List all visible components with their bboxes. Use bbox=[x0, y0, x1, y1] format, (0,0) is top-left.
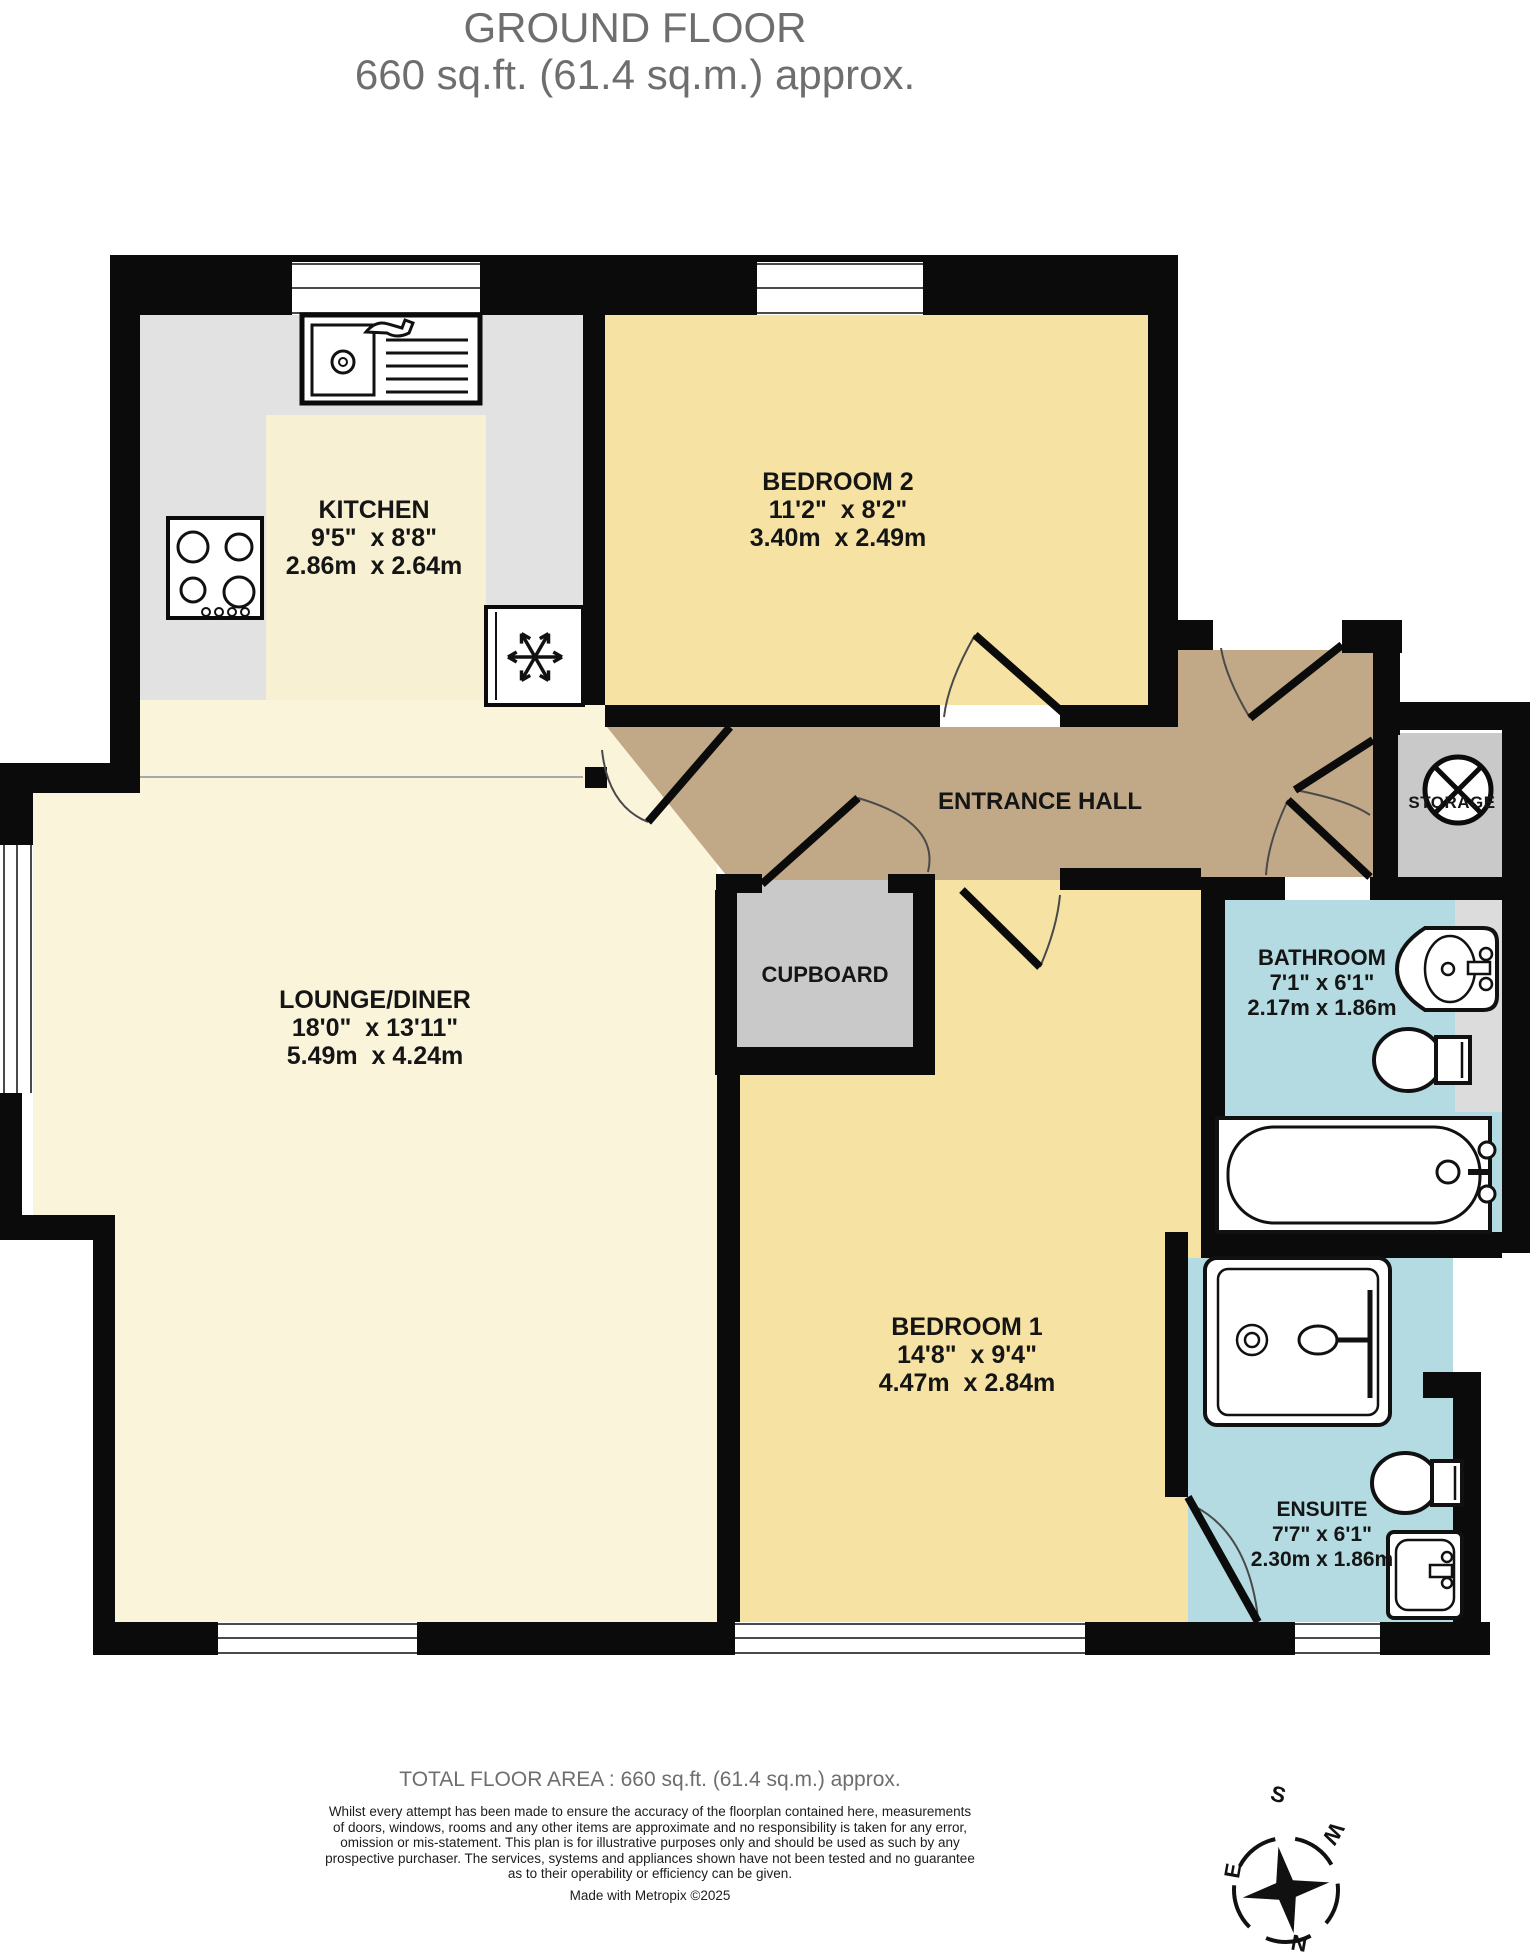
total-floor-area: TOTAL FLOOR AREA : 660 sq.ft. (61.4 sq.m… bbox=[0, 1768, 1300, 1792]
floorplan-page: S W N E GROUND FLOOR 660 sq.ft. (61.4 sq… bbox=[0, 0, 1536, 1952]
bathroom-toilet-icon bbox=[1374, 1029, 1470, 1091]
ensuite-bottom-window bbox=[1295, 1622, 1380, 1655]
room-label-lounge: LOUNGE/DINER 18'0" x 13'11" 5.49m x 4.24… bbox=[279, 986, 471, 1070]
ensuite-basin-icon bbox=[1388, 1532, 1462, 1618]
room-label-ensuite: ENSUITE 7'7" x 6'1" 2.30m x 1.86m bbox=[1251, 1497, 1393, 1572]
bathroom-basin-icon bbox=[1397, 928, 1497, 1010]
floor-area-subtitle: 660 sq.ft. (61.4 sq.m.) approx. bbox=[0, 51, 1270, 98]
room-label-kitchen: KITCHEN 9'5" x 8'8" 2.86m x 2.64m bbox=[286, 496, 463, 580]
bedroom2-window bbox=[757, 262, 923, 315]
hob-icon bbox=[168, 518, 262, 618]
lounge-bottom-window bbox=[218, 1622, 417, 1655]
room-label-bedroom1: BEDROOM 1 14'8" x 9'4" 4.47m x 2.84m bbox=[879, 1313, 1056, 1397]
room-label-bedroom2: BEDROOM 2 11'2" x 8'2" 3.40m x 2.49m bbox=[750, 468, 927, 552]
room-label-cupboard: CUPBOARD bbox=[761, 962, 888, 988]
kitchen-sink-icon bbox=[302, 315, 480, 403]
room-label-storage: STORAGE bbox=[1408, 793, 1495, 813]
kitchen-window bbox=[292, 262, 480, 315]
fridge-icon bbox=[486, 607, 583, 705]
metropix-credit: Made with Metropix ©2025 bbox=[0, 1888, 1300, 1903]
compass-west-label: W bbox=[1317, 1818, 1349, 1849]
compass-north-label: N bbox=[1289, 1929, 1309, 1952]
cylinder-icon bbox=[1425, 757, 1491, 823]
wall bbox=[110, 255, 1178, 315]
room-label-bathroom: BATHROOM 7'1" x 6'1" 2.17m x 1.86m bbox=[1247, 945, 1396, 1020]
floor-title: GROUND FLOOR bbox=[0, 4, 1270, 51]
shower-icon bbox=[1205, 1258, 1390, 1425]
disclaimer-text: Whilst every attempt has been made to en… bbox=[0, 1804, 1300, 1882]
bath-icon bbox=[1217, 1118, 1495, 1232]
room-label-entrance-hall: ENTRANCE HALL bbox=[938, 788, 1142, 816]
page-title: GROUND FLOOR 660 sq.ft. (61.4 sq.m.) app… bbox=[0, 4, 1270, 98]
lounge-side-window bbox=[0, 845, 33, 1093]
bedroom1-bottom-window bbox=[735, 1622, 1085, 1655]
